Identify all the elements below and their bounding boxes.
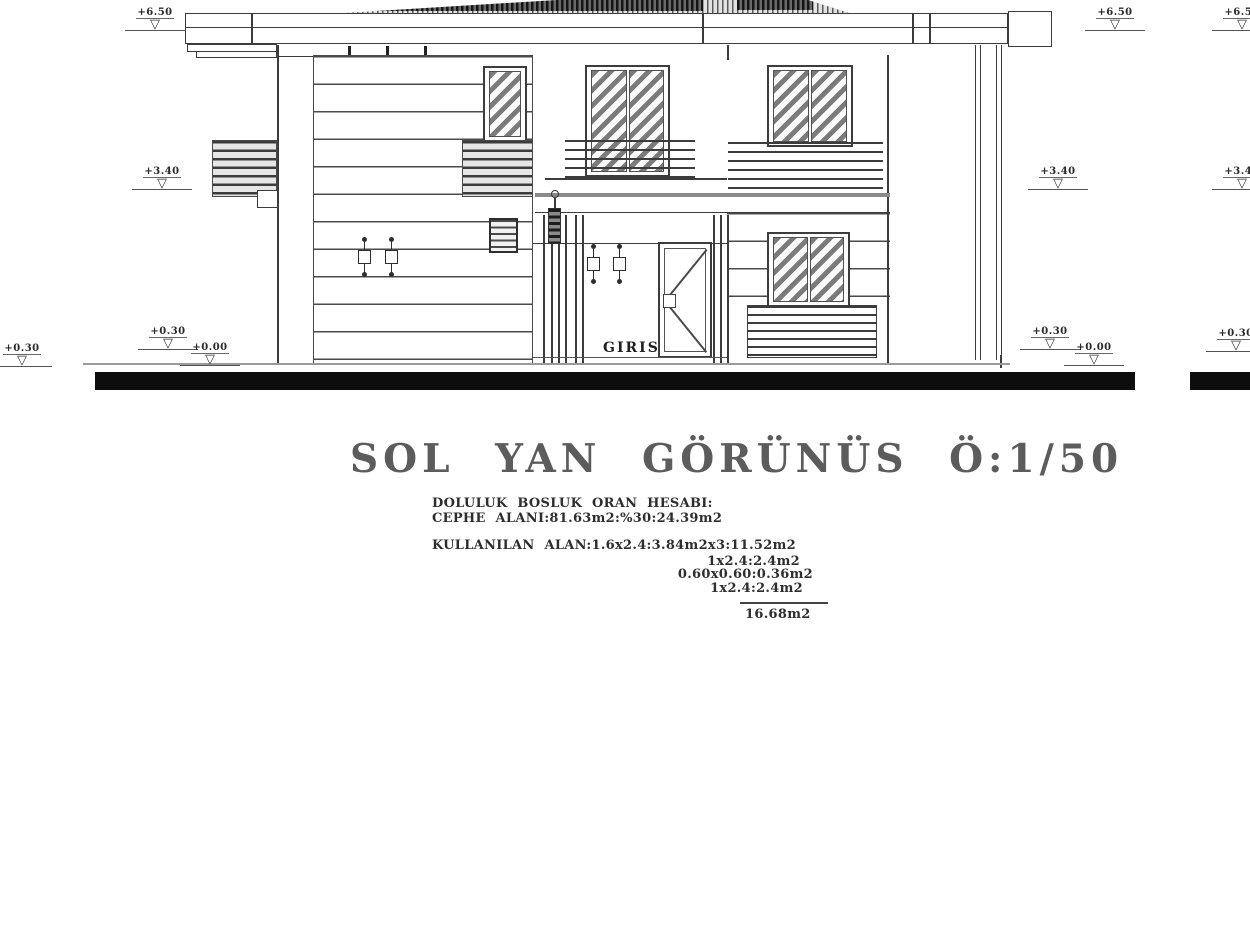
lamp-box	[613, 257, 626, 271]
door-swing-line	[664, 300, 707, 352]
right-column	[996, 45, 1002, 360]
wall-lamp-icon	[587, 245, 600, 283]
entrance-door	[658, 242, 712, 358]
left-corner-top-line	[277, 56, 315, 57]
elevation-marker-plinth-far-right: +0.30 ▽	[1206, 328, 1250, 352]
right-column-foot	[1000, 355, 1002, 368]
calc-heading: DOLULUK BOSLUK ORAN HESABI:	[432, 496, 713, 511]
slab-band	[535, 193, 890, 197]
window-pane	[489, 71, 521, 137]
calc-item: 1x2.4:2.4m2	[710, 581, 803, 596]
window-pane	[811, 70, 847, 142]
eave-step-lower	[196, 51, 277, 58]
right-wall-edge	[887, 55, 889, 364]
balcony-railing-right	[728, 142, 883, 193]
elevation-marker-plinth-far-left: +0.30 ▽	[0, 343, 52, 367]
elevation-marker-roof-right: +6.50 ▽	[1085, 7, 1145, 31]
wall-lamp-icon	[385, 238, 398, 276]
post-cap	[548, 208, 561, 244]
lamp-box	[385, 250, 398, 264]
calc-total: 16.68m2	[745, 607, 811, 622]
level-triangle-icon: ▽	[1212, 19, 1250, 30]
elevation-marker-floor-left: +3.40 ▽	[132, 166, 192, 190]
porch-post-line	[565, 215, 567, 364]
elevation-marker-roof-far-right: +6.50 ▽	[1212, 7, 1250, 31]
roof-fascia	[185, 13, 1008, 44]
level-triangle-icon: ▽	[132, 178, 192, 189]
window-stair-tall	[483, 66, 527, 142]
lamp-tick	[364, 238, 366, 250]
balcony-railing-stair	[462, 140, 533, 197]
lamp-tick	[391, 264, 393, 276]
fascia-end-cap	[1008, 11, 1052, 47]
lamp-tick	[593, 245, 595, 257]
porch-post-line	[582, 215, 584, 364]
elevation-drawing-sheet: GIRIS +6.50 ▽ +6.50 ▽ +6.50 ▽ +3.40 ▽ +3…	[0, 0, 1250, 930]
level-triangle-icon: ▽	[0, 355, 52, 366]
roof-tile-dark-strip	[336, 0, 703, 11]
level-triangle-icon: ▽	[1212, 178, 1250, 189]
calc-item: 0.60x0.60:0.36m2	[678, 567, 813, 582]
elevation-marker-ground-left: +0.00 ▽	[180, 342, 240, 366]
calc-facade-area: CEPHE ALANI:81.63m2:%30:24.39m2	[432, 511, 722, 526]
vent-grille	[489, 218, 518, 253]
right-column	[975, 45, 981, 360]
elevation-marker-floor-far-right: +3.40 ▽	[1212, 166, 1250, 190]
level-triangle-icon: ▽	[180, 354, 240, 365]
window-ground-right	[767, 232, 850, 307]
low-striped-wall	[747, 305, 877, 358]
lamp-tick	[364, 264, 366, 276]
ground-bar-right	[1190, 372, 1250, 390]
roof-tile-dark-strip	[737, 0, 813, 10]
drawing-title: SOL YAN GÖRÜNÜS Ö:1/50	[350, 436, 1123, 482]
level-triangle-icon: ▽	[125, 19, 185, 30]
lamp-box	[358, 250, 371, 264]
fascia-mid-line	[186, 27, 1007, 28]
door-sill-line	[533, 357, 727, 358]
calc-sum-rule	[740, 602, 828, 604]
elevation-marker-floor-right: +3.40 ▽	[1028, 166, 1088, 190]
window-upper-right	[767, 65, 853, 147]
door-leaf	[664, 248, 706, 352]
balcony-step	[257, 190, 278, 208]
elevation-marker-ground-right: +0.00 ▽	[1064, 342, 1124, 366]
elevation-marker-roof-left: +6.50 ▽	[125, 7, 185, 31]
porch-post-line	[713, 215, 715, 364]
level-triangle-icon: ▽	[1085, 19, 1145, 30]
level-triangle-icon: ▽	[1028, 178, 1088, 189]
porch-post-line	[575, 215, 577, 364]
window-pane	[773, 237, 808, 302]
fascia-joint	[702, 14, 704, 43]
balcony-railing-center	[565, 140, 695, 178]
post-finial-icon	[551, 190, 559, 198]
lamp-box	[587, 257, 600, 271]
lamp-tick	[391, 238, 393, 250]
lamp-tick	[619, 245, 621, 257]
roof-tile-hatch	[327, 0, 850, 14]
window-pane	[810, 237, 845, 302]
lamp-tick	[593, 271, 595, 283]
ground-bar	[95, 372, 1135, 390]
wall-lamp-icon	[613, 245, 626, 283]
porch-post-line	[727, 215, 729, 364]
slab-line-upper	[545, 178, 727, 180]
wall-joint-tick	[727, 45, 729, 60]
level-triangle-icon: ▽	[1064, 354, 1124, 365]
wall-lamp-icon	[358, 238, 371, 276]
slab-line-lower	[535, 212, 890, 213]
window-pane	[773, 70, 809, 142]
porch-post-line	[543, 215, 545, 364]
fascia-joint	[929, 14, 931, 43]
fascia-joint	[912, 14, 914, 43]
entrance-label: GIRIS	[603, 340, 660, 356]
fascia-joint	[251, 14, 253, 43]
porch-post-line	[720, 215, 722, 364]
lamp-tick	[619, 271, 621, 283]
door-handle	[663, 294, 676, 308]
level-triangle-icon: ▽	[1206, 340, 1250, 351]
balcony-railing-left	[212, 140, 277, 197]
post-finial-stem	[554, 198, 556, 208]
calc-used-area: KULLANILAN ALAN:1.6x2.4:3.84m2x3:11.52m2	[432, 538, 796, 553]
